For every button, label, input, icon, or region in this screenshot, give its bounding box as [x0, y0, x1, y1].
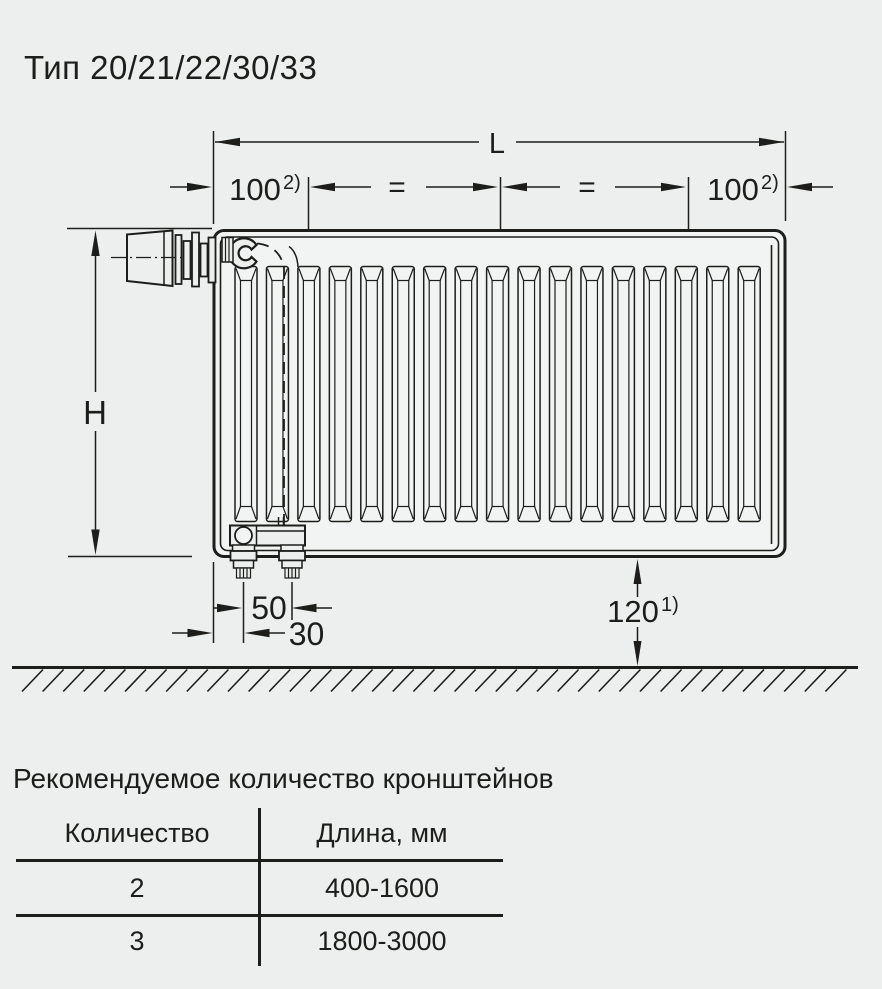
valve-ring	[192, 233, 199, 287]
thermostatic-valve-head	[111, 231, 216, 287]
floor-clearance-value: 120	[607, 594, 659, 629]
table-row: 2 400-1600	[16, 862, 503, 917]
valve-ring	[209, 238, 216, 283]
floor-clearance-note: 1)	[661, 594, 679, 616]
bottom-connection-pipe-right	[279, 545, 305, 578]
dimension-floor-clearance: 120 1)	[607, 559, 679, 666]
floor-line	[12, 668, 858, 692]
dimension-top: L 100 2) = = 100 2)	[170, 128, 833, 229]
equal-spacing-right-label: =	[578, 171, 596, 204]
floor-hatching	[22, 670, 846, 692]
quantity-value: 3	[16, 917, 261, 966]
drain-plug	[235, 527, 252, 544]
radiator-channels	[235, 267, 760, 522]
column-header-quantity: Количество	[16, 808, 261, 859]
valve-ring	[201, 244, 208, 277]
dimension-pipes: 50 30	[172, 562, 332, 652]
equal-spacing-left-label: =	[388, 171, 406, 204]
quantity-value: 2	[16, 862, 261, 914]
valve-insert	[222, 238, 233, 263]
bracket-offset-left-note: 2)	[283, 172, 301, 194]
brackets-table: Количество Длина, мм 2 400-1600 3 1800-3…	[16, 808, 503, 966]
brackets-table-header-row: Количество Длина, мм	[16, 808, 503, 862]
bottom-valve-block	[230, 526, 305, 546]
length-range-value: 1800-3000	[261, 917, 503, 966]
valve-head-body	[127, 231, 173, 287]
radiator-body	[214, 231, 785, 579]
pipe-spacing-label: 50	[251, 590, 287, 626]
table-row: 3 1800-3000	[16, 917, 503, 966]
column-header-length: Длина, мм	[261, 808, 503, 859]
bracket-offset-right-note: 2)	[761, 172, 779, 194]
brackets-table-caption: Рекомендуемое количество кронштейнов	[13, 765, 554, 793]
valve-ring	[176, 235, 182, 284]
dimension-height-label: H	[83, 394, 107, 431]
edge-offset-label: 30	[289, 616, 325, 652]
length-range-value: 400-1600	[261, 862, 503, 914]
dimension-length-label: L	[489, 128, 505, 160]
bracket-offset-left-value: 100	[229, 172, 281, 207]
bracket-offset-right-value: 100	[707, 172, 759, 207]
valve-ring	[184, 241, 191, 279]
bottom-connection-pipe-left	[231, 545, 257, 578]
